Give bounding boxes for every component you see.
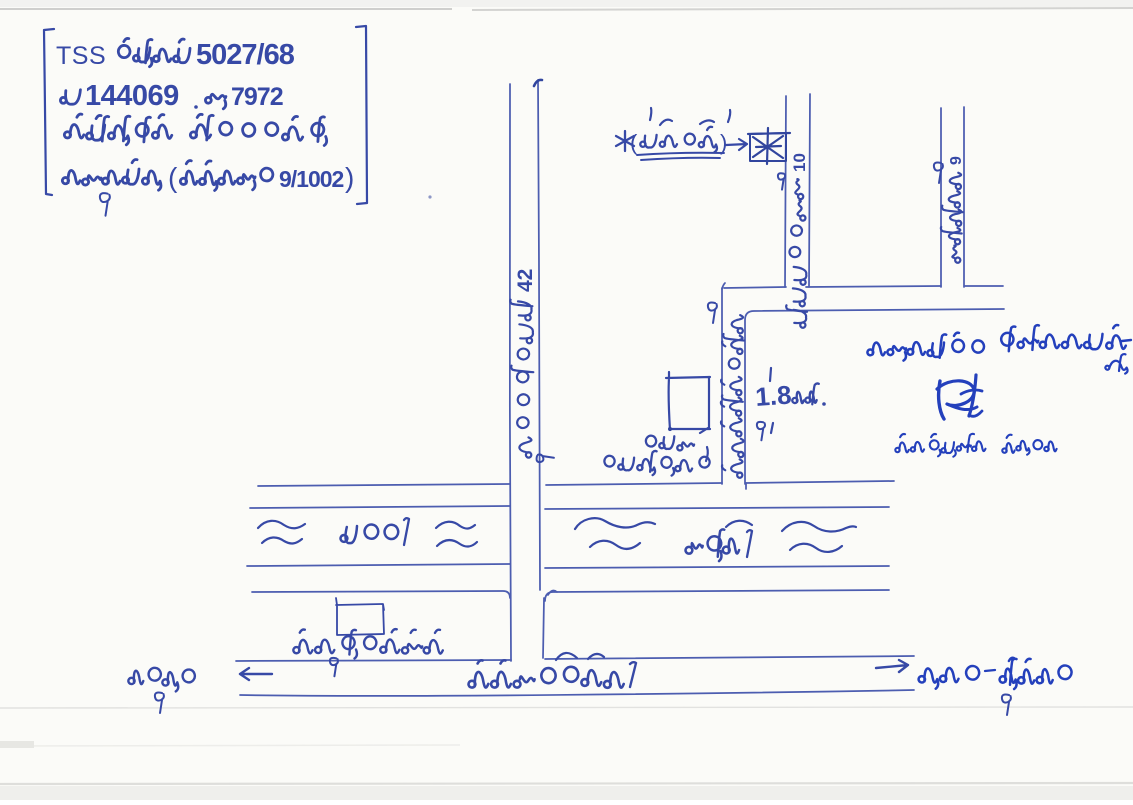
svg-text:10: 10: [790, 153, 809, 172]
svg-text:9: 9: [948, 156, 965, 165]
svg-text:(: (: [630, 130, 638, 155]
svg-text:9/1002: 9/1002: [279, 166, 344, 192]
svg-text:TSS: TSS: [56, 42, 106, 70]
svg-text:(: (: [168, 162, 178, 193]
svg-text:): ): [345, 162, 354, 193]
svg-text:42: 42: [514, 269, 537, 292]
svg-text:7972: 7972: [231, 83, 283, 111]
svg-text:5027/68: 5027/68: [196, 39, 295, 71]
svg-text:144069: 144069: [85, 80, 179, 112]
svg-text:1.8: 1.8: [754, 380, 792, 412]
svg-text:): ): [720, 130, 727, 155]
